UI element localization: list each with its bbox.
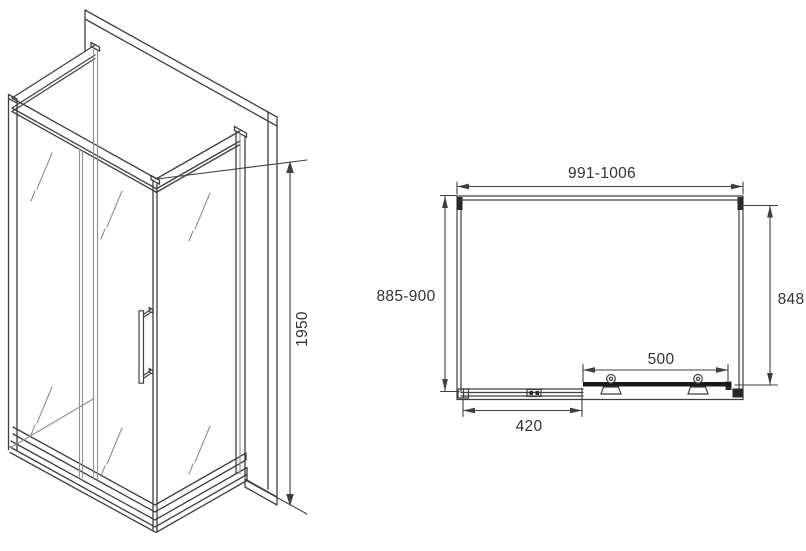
arrow-left-icon bbox=[583, 367, 595, 373]
arrow-down-icon bbox=[767, 373, 773, 385]
wall-profile-top-right bbox=[738, 197, 744, 210]
base-tray bbox=[10, 427, 247, 533]
panel-dimension-label: 420 bbox=[508, 419, 550, 435]
wall-profile-bottom-left bbox=[458, 389, 469, 398]
right-depth-dimension-label: 848 bbox=[776, 292, 806, 308]
right-top-frame bbox=[156, 131, 240, 193]
wall-profile-top-left bbox=[457, 197, 463, 210]
arrow-right-icon bbox=[570, 408, 582, 414]
arrow-up-icon bbox=[767, 206, 773, 218]
plan-outline bbox=[457, 196, 743, 400]
glass-reflection-marks bbox=[31, 153, 210, 476]
technical-drawing-page: 1950 991-1006 885-900 848 500 420 bbox=[0, 0, 806, 551]
fixed-panel-track bbox=[461, 389, 583, 396]
front-top-frame bbox=[12, 98, 156, 192]
height-dimension-label: 1950 bbox=[295, 306, 311, 352]
arrow-left-icon bbox=[457, 184, 469, 190]
width-dimension-line bbox=[457, 182, 743, 194]
left-depth-dimension-line bbox=[441, 196, 460, 392]
sliding-door-bar bbox=[583, 382, 731, 387]
isometric-view bbox=[9, 10, 308, 533]
arrow-down-icon bbox=[286, 494, 294, 506]
wall-profile-bottom-right bbox=[733, 389, 744, 398]
back-wall-slab bbox=[85, 10, 277, 505]
right-depth-dimension-line bbox=[735, 206, 778, 386]
door-handle bbox=[139, 308, 153, 384]
glass-edges bbox=[11, 47, 240, 480]
arrow-down-icon bbox=[442, 379, 448, 391]
arrow-right-icon bbox=[731, 184, 743, 190]
arrow-up-icon bbox=[442, 196, 448, 208]
drawing-lines bbox=[0, 0, 806, 551]
arrow-right-icon bbox=[716, 367, 728, 373]
door-dimension-label: 500 bbox=[640, 352, 682, 368]
front-corner-post bbox=[151, 176, 160, 532]
left-depth-dimension-label: 885-900 bbox=[371, 289, 441, 305]
width-dimension-label: 991-1006 bbox=[562, 166, 642, 182]
arrow-left-icon bbox=[463, 408, 475, 414]
plan-view bbox=[441, 182, 778, 417]
